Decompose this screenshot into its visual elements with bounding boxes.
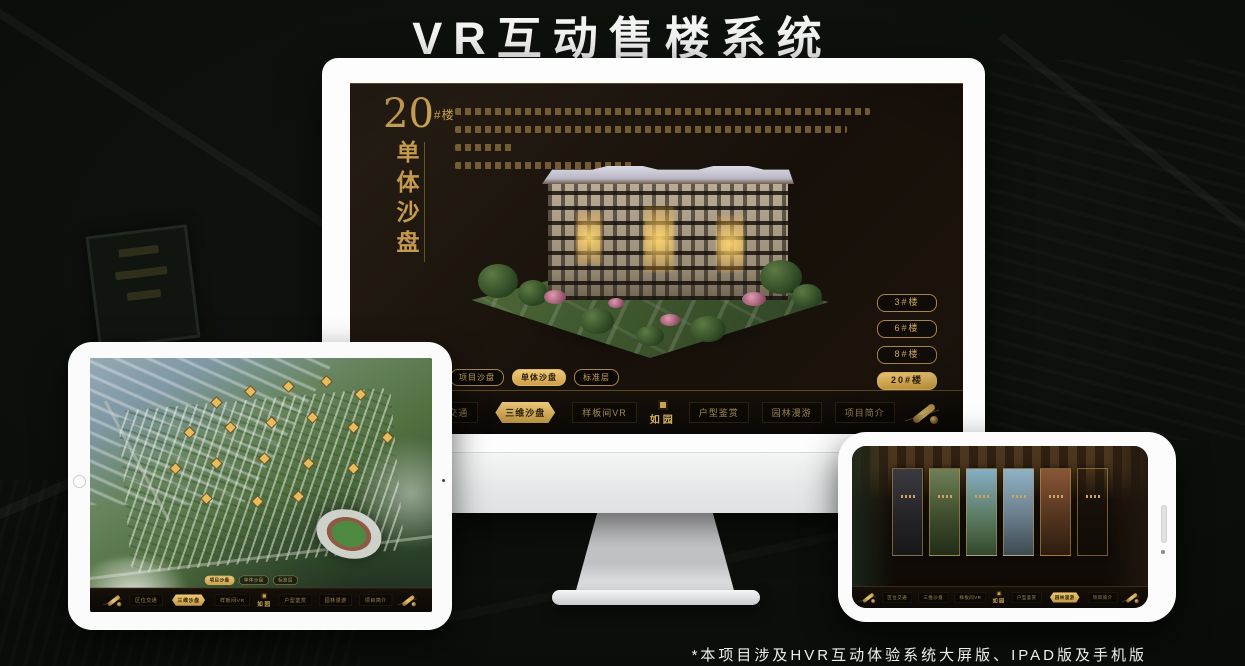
home-button (73, 475, 86, 488)
right-wall (1107, 446, 1148, 608)
aerial-masterplan-view (90, 358, 432, 612)
scroll-icon (105, 593, 123, 607)
camera-icon (1161, 550, 1165, 554)
scroll-icon (1124, 591, 1140, 604)
background-plaque (85, 224, 200, 350)
bottom-navbar: 区位交通 三维沙盘 样板间VR 如园 户型鉴赏 园林漫游 项目简介 (852, 586, 1148, 608)
sandtable-subtabs: 项目沙盘 单体沙盘 标准层 (205, 576, 432, 585)
footnote: *本项目涉及HVR互动体验系统大屏版、IPAD版及手机版 (692, 644, 1147, 665)
poster: VR互动售楼系统 20#楼 单体沙盘 (0, 0, 1245, 666)
scroll-icon (400, 593, 418, 607)
monitor-stand-neck (575, 512, 735, 594)
logo-name: 如园 (257, 599, 271, 607)
logo-name: 如园 (993, 596, 1006, 603)
nav-item-garden-tour[interactable]: 园林漫游 (319, 594, 352, 606)
camera-icon (442, 479, 445, 482)
background-city-texture (990, 60, 1245, 440)
nav-item-showroom-vr[interactable]: 样板间VR (954, 592, 986, 602)
phone-side-button (1161, 505, 1167, 543)
gallery-panels (892, 468, 1108, 556)
phone: 区位交通 三维沙盘 样板间VR 如园 户型鉴赏 园林漫游 项目简介 (838, 432, 1176, 622)
gallery-panel[interactable] (1040, 468, 1071, 556)
nav-item-3d-sandtable[interactable]: 三维沙盘 (170, 594, 208, 606)
nav-item-project-intro[interactable]: 项目简介 (1088, 592, 1118, 602)
nav-item-location-traffic[interactable]: 区位交通 (882, 592, 912, 602)
tablet-ui-overlay: 项目沙盘 单体沙盘 标准层 区位交通 三维沙盘 样板间VR 如园 户型鉴赏 园林… (90, 576, 432, 612)
phone-screen: 区位交通 三维沙盘 样板间VR 如园 户型鉴赏 园林漫游 项目简介 (852, 446, 1148, 608)
nav-item-project-intro[interactable]: 项目简介 (359, 594, 392, 606)
gallery-panel[interactable] (892, 468, 923, 556)
subtab-standard-floor[interactable]: 标准层 (273, 576, 298, 585)
logo-seal-icon (997, 591, 1002, 596)
nav-item-location-traffic[interactable]: 区位交通 (130, 594, 163, 606)
logo-seal-icon (262, 593, 268, 599)
brand-logo: 如园 (993, 591, 1006, 604)
gallery-panel[interactable] (1003, 468, 1034, 556)
nav-item-showroom-vr[interactable]: 样板间VR (215, 594, 251, 606)
gallery-panel[interactable] (1077, 468, 1108, 556)
phone-ui-overlay: 区位交通 三维沙盘 样板间VR 如园 户型鉴赏 园林漫游 项目简介 (852, 586, 1148, 608)
monitor-stand-foot (552, 590, 760, 605)
brand-logo: 如园 (257, 593, 271, 607)
subtab-project-sandtable[interactable]: 项目沙盘 (205, 576, 235, 585)
nav-item-3d-sandtable[interactable]: 三维沙盘 (918, 592, 948, 602)
tablet-ipad: 项目沙盘 单体沙盘 标准层 区位交通 三维沙盘 样板间VR 如园 户型鉴赏 园林… (68, 342, 452, 630)
nav-item-floorplan[interactable]: 户型鉴赏 (1012, 592, 1042, 602)
subtab-single-sandtable[interactable]: 单体沙盘 (239, 576, 269, 585)
gallery-panel[interactable] (966, 468, 997, 556)
nav-item-garden-tour[interactable]: 园林漫游 (1048, 592, 1082, 602)
left-wall (852, 446, 893, 608)
tablet-screen: 项目沙盘 单体沙盘 标准层 区位交通 三维沙盘 样板间VR 如园 户型鉴赏 园林… (90, 358, 432, 612)
nav-item-floorplan[interactable]: 户型鉴赏 (279, 594, 312, 606)
scroll-icon (860, 591, 876, 604)
bottom-navbar: 区位交通 三维沙盘 样板间VR 如园 户型鉴赏 园林漫游 项目简介 (90, 588, 432, 612)
gallery-panel[interactable] (929, 468, 960, 556)
